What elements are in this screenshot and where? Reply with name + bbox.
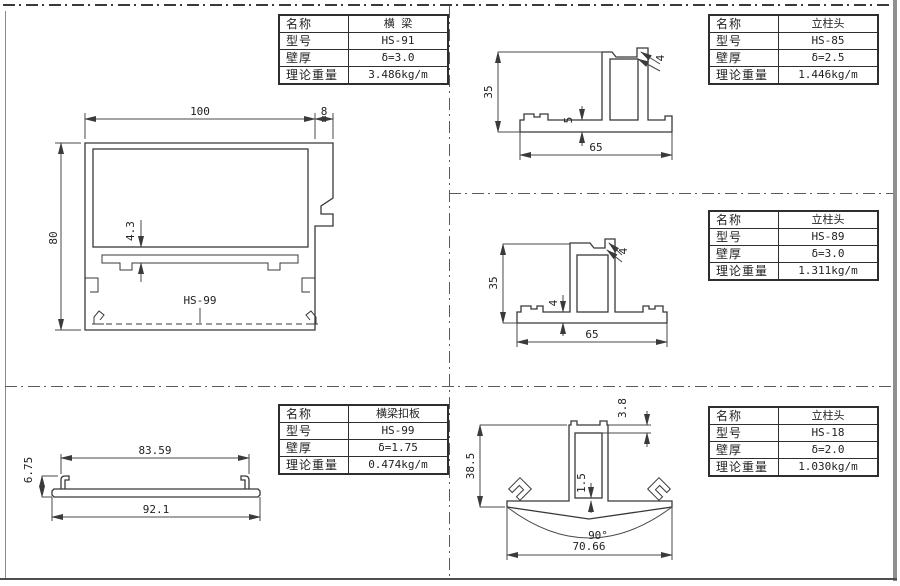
- separator-horizontal-full: [5, 386, 893, 387]
- value-thickness: δ=2.0: [779, 442, 879, 459]
- spec-table-hs85: 名称立柱头 型号HS-85 壁厚δ=2.5 理论重量1.446kg/m: [708, 14, 879, 85]
- profile-drawing-hs85: 35 4 5 65: [458, 12, 690, 180]
- value-name: 横梁扣板: [349, 405, 449, 423]
- profile-drawing-hs99: 83.59 6.75 92.1: [8, 418, 290, 540]
- dim-text-width: 100: [190, 105, 210, 118]
- label-weight: 理论重量: [279, 67, 349, 85]
- dim-text-wall: 4: [617, 247, 630, 254]
- dim-text-base: 4: [547, 299, 560, 306]
- label-thickness: 壁厚: [709, 442, 779, 459]
- profile-drawing-hs91: 100 8 80 4.3 HS-99: [28, 98, 380, 343]
- hs99-left-hook: [61, 476, 69, 489]
- label-name: 名称: [709, 15, 779, 33]
- label-model: 型号: [279, 33, 349, 50]
- hs91-right-hook: [306, 311, 318, 324]
- hs85-inner-cavity: [610, 59, 638, 120]
- value-weight: 3.486kg/m: [349, 67, 449, 85]
- dim-text-height: 6.75: [22, 457, 35, 484]
- dim-text-height: 35: [487, 276, 500, 289]
- hs91-right-step: [302, 278, 315, 292]
- hs91-shelf: [102, 255, 298, 270]
- frame-right-border: [893, 0, 897, 581]
- value-weight: 0.474kg/m: [349, 457, 449, 475]
- dim-text-flange: 8: [321, 105, 328, 118]
- dim-text-width: 65: [589, 141, 602, 154]
- spec-table-hs99: 名称横梁扣板 型号HS-99 壁厚δ=1.75 理论重量0.474kg/m: [278, 404, 449, 475]
- dim-text-width: 70.66: [572, 540, 605, 553]
- label-thickness: 壁厚: [709, 50, 779, 67]
- ref-label-hs99: HS-99: [183, 294, 216, 307]
- hs18-right-clip: [648, 478, 671, 501]
- value-model: HS-18: [779, 425, 879, 442]
- spec-table-hs18: 名称立柱头 型号HS-18 壁厚δ=2.0 理论重量1.030kg/m: [708, 406, 879, 477]
- dim-text-width: 92.1: [143, 503, 170, 516]
- value-name: 立柱头: [779, 407, 879, 425]
- label-weight: 理论重量: [709, 263, 779, 281]
- value-thickness: δ=1.75: [349, 440, 449, 457]
- label-model: 型号: [709, 425, 779, 442]
- label-weight: 理论重量: [709, 67, 779, 85]
- spec-table-hs91: 名称横 梁 型号HS-91 壁厚δ=3.0 理论重量3.486kg/m: [278, 14, 449, 85]
- dim-text-base: 5: [562, 117, 575, 124]
- label-model: 型号: [709, 229, 779, 246]
- hs99-plate: [52, 489, 260, 497]
- dim-text-height: 80: [47, 231, 60, 244]
- separator-horizontal-right: [449, 193, 893, 194]
- value-model: HS-99: [349, 423, 449, 440]
- value-model: HS-89: [779, 229, 879, 246]
- hs99-right-hook: [241, 476, 249, 489]
- hs91-left-step: [85, 278, 98, 292]
- label-thickness: 壁厚: [709, 246, 779, 263]
- label-name: 名称: [279, 15, 349, 33]
- drawing-sheet: 名称横 梁 型号HS-91 壁厚δ=3.0 理论重量3.486kg/m 名称立柱…: [0, 0, 900, 586]
- dim-text-height: 35: [482, 85, 495, 98]
- value-weight: 1.311kg/m: [779, 263, 879, 281]
- value-thickness: δ=3.0: [349, 50, 449, 67]
- value-model: HS-91: [349, 33, 449, 50]
- value-name: 横 梁: [349, 15, 449, 33]
- frame-left-border: [5, 11, 6, 578]
- dim-text-height: 38.5: [464, 453, 477, 480]
- hs89-outer-contour: [517, 239, 667, 323]
- dim-text-web: 1.5: [575, 473, 588, 493]
- hs18-left-clip: [509, 478, 532, 501]
- dim-text-wall: 3.8: [616, 398, 629, 418]
- dim-text-width: 65: [585, 328, 598, 341]
- label-name: 名称: [709, 211, 779, 229]
- value-thickness: δ=2.5: [779, 50, 879, 67]
- dim-text-inner: 83.59: [138, 444, 171, 457]
- dim-text-wall: 4: [654, 54, 667, 61]
- label-model: 型号: [709, 33, 779, 50]
- label-thickness: 壁厚: [279, 50, 349, 67]
- value-weight: 1.446kg/m: [779, 67, 879, 85]
- hs91-left-hook: [92, 311, 104, 324]
- value-name: 立柱头: [779, 15, 879, 33]
- value-model: HS-85: [779, 33, 879, 50]
- spec-table-hs89: 名称立柱头 型号HS-89 壁厚δ=3.0 理论重量1.311kg/m: [708, 210, 879, 281]
- hs85-outer-contour: [520, 48, 672, 132]
- profile-drawing-hs18: 3.8 38.5 1.5 90° 70.66: [448, 393, 700, 585]
- value-name: 立柱头: [779, 211, 879, 229]
- label-name: 名称: [709, 407, 779, 425]
- hs89-inner-cavity: [577, 255, 608, 312]
- profile-drawing-hs89: 35 4 4 65: [458, 203, 690, 388]
- value-weight: 1.030kg/m: [779, 459, 879, 477]
- label-weight: 理论重量: [709, 459, 779, 477]
- value-thickness: δ=3.0: [779, 246, 879, 263]
- dim-text-gap: 4.3: [124, 221, 137, 241]
